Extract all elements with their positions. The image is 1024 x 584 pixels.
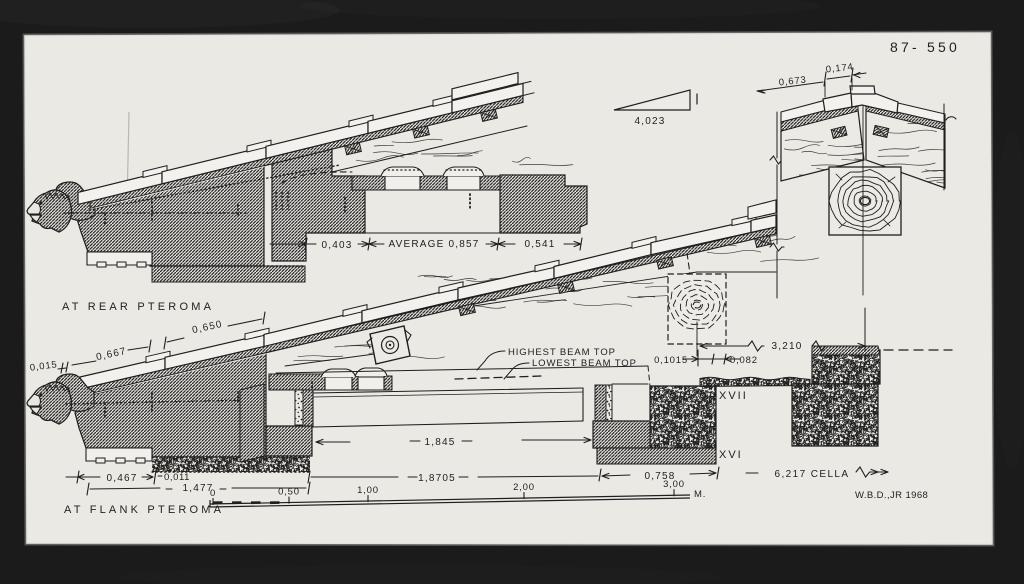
svg-text:2,00: 2,00 — [513, 482, 535, 493]
svg-text:3,00: 3,00 — [663, 479, 685, 490]
svg-text:XVII: XVII — [719, 390, 748, 402]
svg-text:6,217 CELLA: 6,217 CELLA — [775, 469, 850, 480]
svg-text:LOWEST BEAM TOP: LOWEST BEAM TOP — [532, 358, 637, 369]
svg-text:W.B.D.,JR 1968: W.B.D.,JR 1968 — [855, 490, 928, 501]
svg-text:3,210: 3,210 — [771, 341, 802, 352]
svg-text:4,023: 4,023 — [634, 116, 665, 127]
svg-text:XVI: XVI — [719, 449, 743, 461]
svg-text:0,403: 0,403 — [321, 240, 352, 251]
svg-text:M.: M. — [694, 489, 706, 500]
svg-text:0,50: 0,50 — [278, 487, 300, 498]
svg-text:0,082: 0,082 — [730, 355, 758, 366]
svg-text:1,845: 1,845 — [424, 437, 455, 448]
svg-text:0,011: 0,011 — [164, 472, 190, 483]
svg-text:0,541: 0,541 — [524, 239, 555, 250]
svg-text:1,00: 1,00 — [357, 485, 379, 496]
svg-text:AVERAGE 0,857: AVERAGE 0,857 — [388, 239, 479, 250]
svg-text:1,8705: 1,8705 — [418, 473, 456, 484]
svg-text:AT FLANK PTEROMA: AT FLANK PTEROMA — [64, 504, 224, 516]
svg-text:HIGHEST BEAM TOP: HIGHEST BEAM TOP — [508, 347, 616, 358]
svg-text:87- 550: 87- 550 — [890, 39, 960, 55]
svg-text:AT REAR PTEROMA: AT REAR PTEROMA — [62, 301, 214, 313]
svg-text:1,477: 1,477 — [182, 483, 213, 494]
svg-text:0,467: 0,467 — [106, 473, 137, 484]
svg-text:0: 0 — [210, 488, 216, 499]
svg-text:0,1015: 0,1015 — [654, 355, 688, 366]
